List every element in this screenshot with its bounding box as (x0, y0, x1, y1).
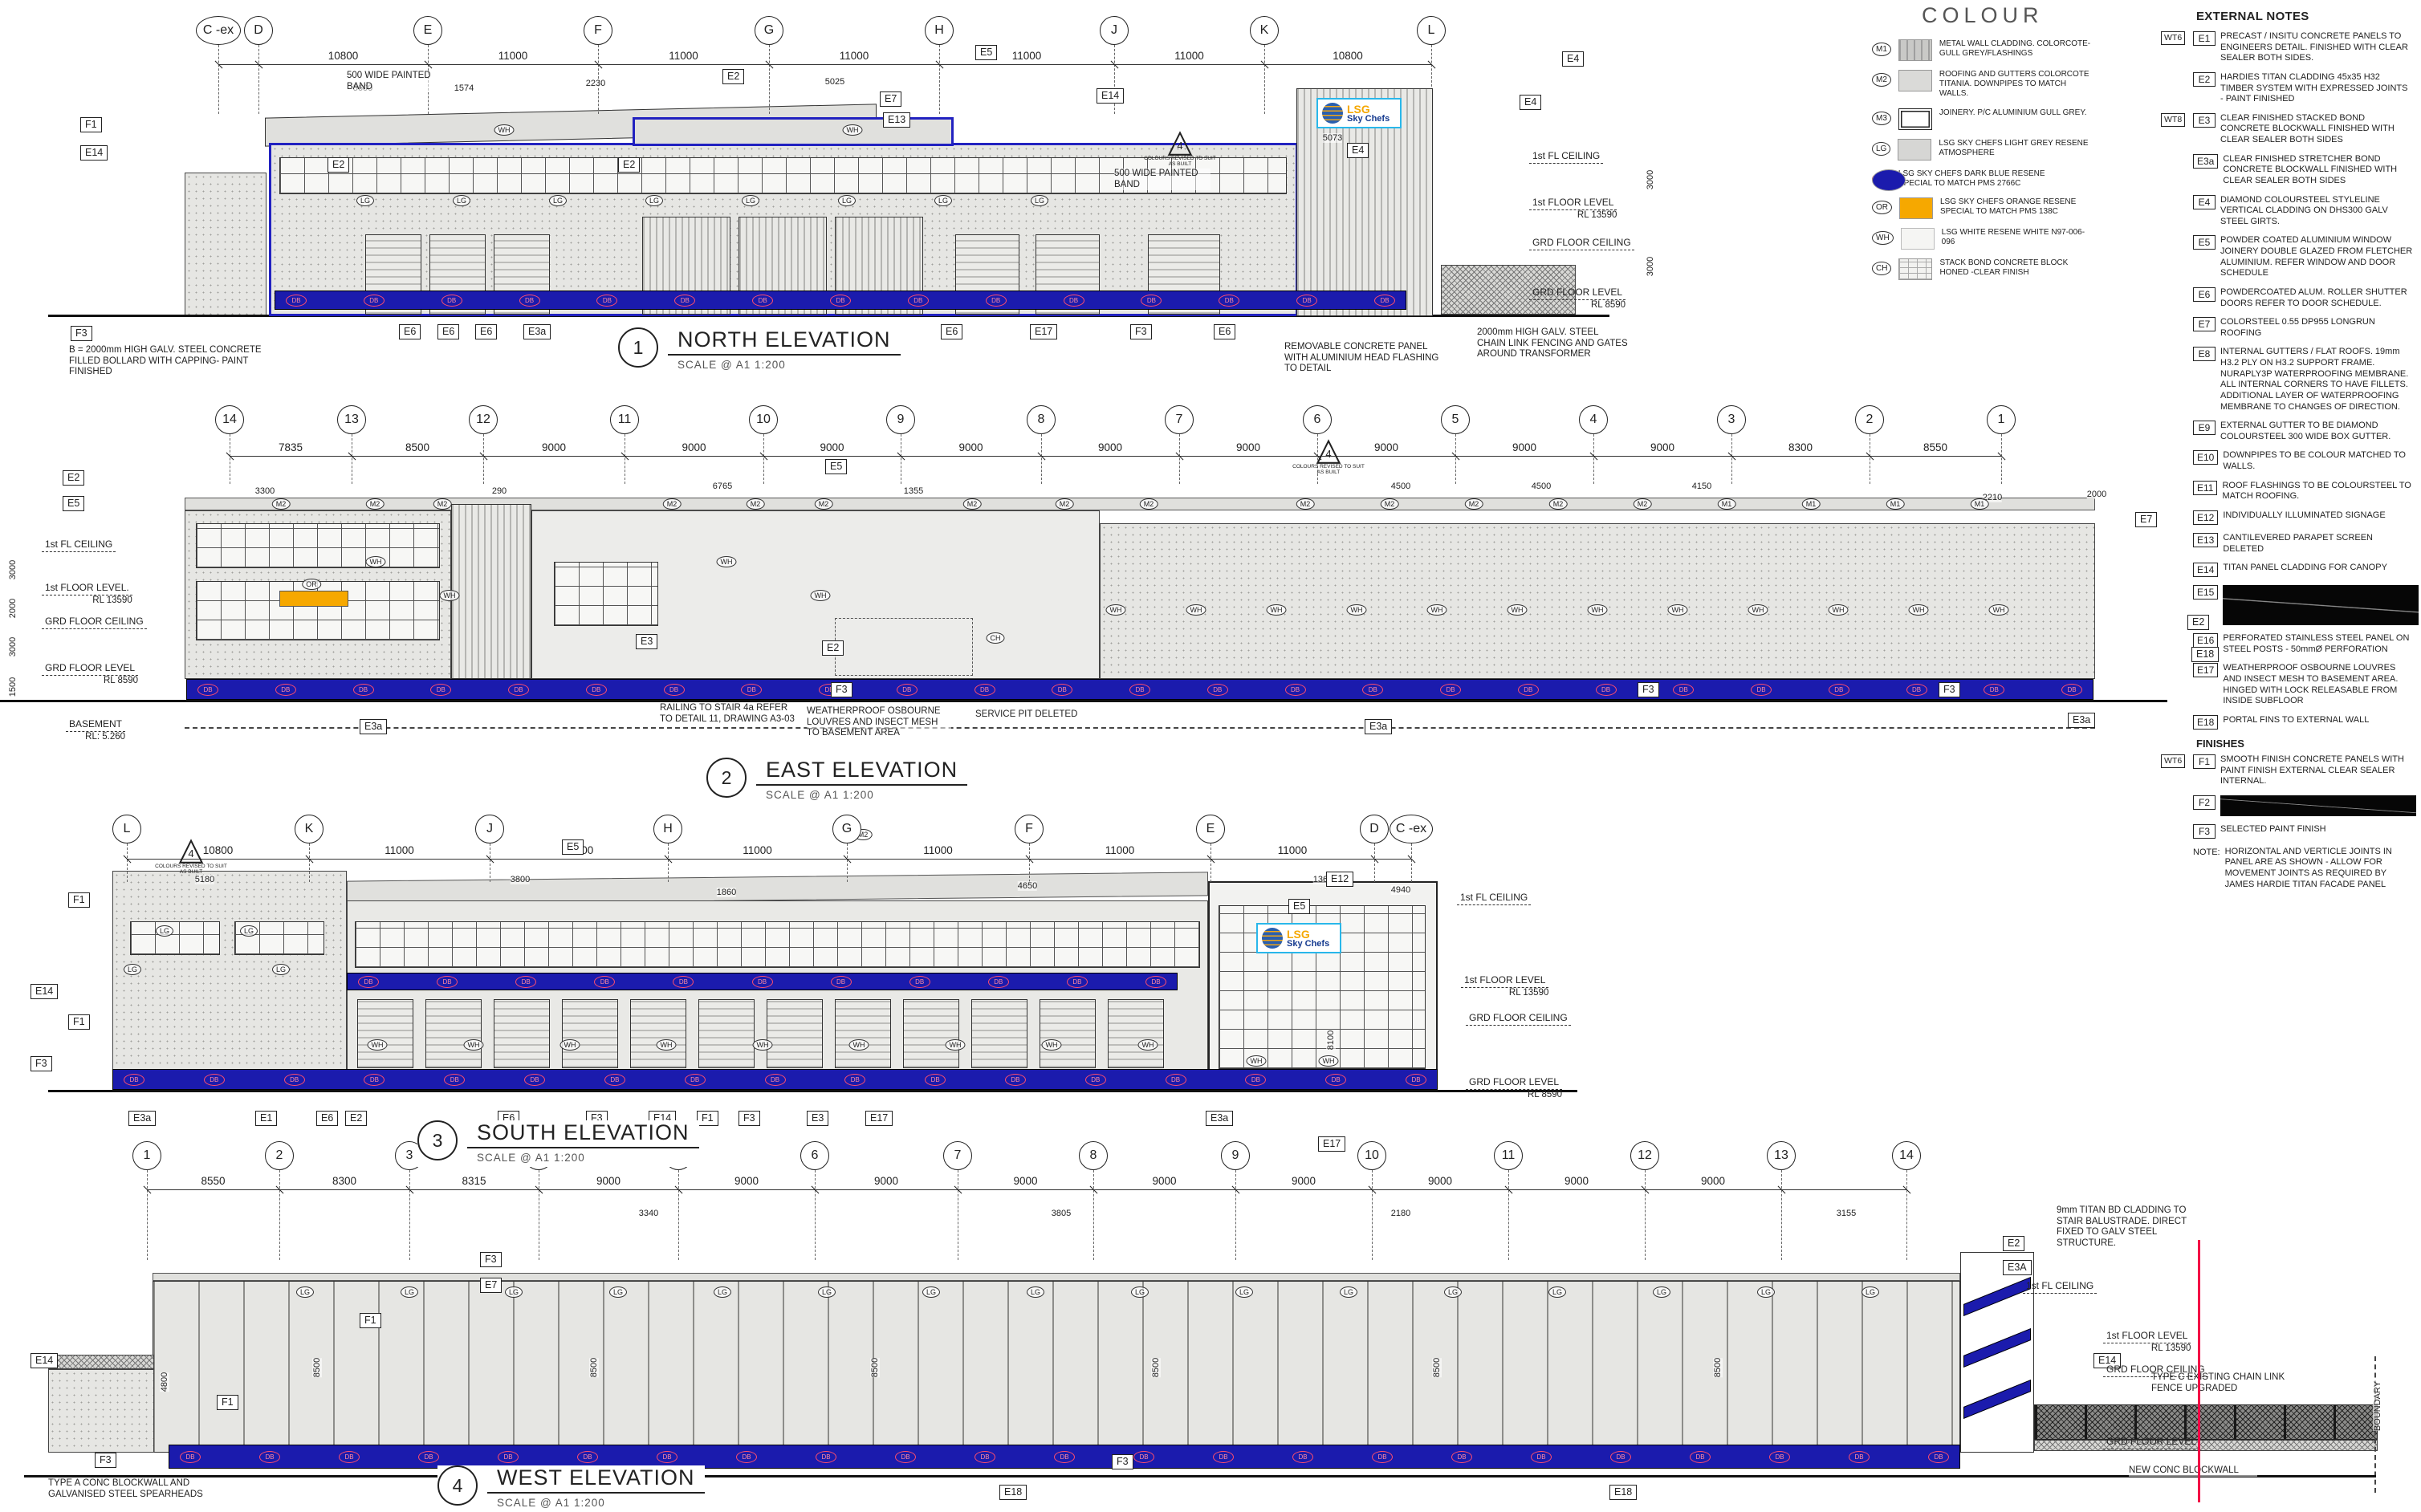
note-ref-tag: F1 (2193, 754, 2216, 769)
facade-code-label: WH (368, 1039, 388, 1051)
level-label: 1st FLOOR LEVELRL 13590 (1529, 197, 1617, 221)
dimension-label: 9000 (682, 441, 706, 453)
sub-dimension-label: 6765 (713, 482, 732, 491)
level-rl: RL 13590 (42, 595, 132, 606)
elevation-title-text: NORTH ELEVATION (668, 327, 901, 356)
facade-code-label: WH (657, 1039, 677, 1051)
grid-bubble: D (1360, 815, 1389, 843)
level-label: GRD FLOOR CEILING (42, 616, 147, 629)
note-ref-tag: E6 (2193, 287, 2216, 302)
grid-drop-line (901, 434, 901, 484)
sub-dimension-label: 1500 (8, 677, 18, 697)
facade-code-label: LG (240, 925, 258, 937)
colour-desc: LSG SKY CHEFS DARK BLUE RESENE SPECIAL T… (1898, 169, 2055, 189)
note-ref-tag: E5 (2193, 235, 2216, 250)
db-colour-marker: DB (816, 1451, 836, 1463)
colour-swatch-m2 (1898, 70, 1932, 91)
sub-dimension-label: 3805 (1052, 1209, 1071, 1218)
db-colour-marker: DB (1928, 1451, 1949, 1463)
logo-text: LSGSky Chefs (1347, 104, 1390, 124)
facade-code-label: WH (1186, 604, 1206, 616)
grid-bubble: 12 (1630, 1141, 1659, 1170)
grid-drop-line (1731, 434, 1732, 484)
logo-line2: Sky Chefs (1287, 940, 1329, 949)
grid-bubble: 13 (1767, 1141, 1796, 1170)
ref-tag: E2 (822, 640, 844, 656)
note-ref-tag: F3 (2193, 824, 2216, 839)
elevation-scale-text: SCALE @ A1 1:200 (756, 786, 967, 804)
dimension-label: 9000 (1374, 441, 1398, 453)
colour-legend-item: WHLSG WHITE RESENE WHITE N97-006-096 (1872, 228, 2118, 250)
note-prefix-slot: WT6 (2161, 31, 2188, 45)
level-label: GRD FLOOR LEVELRL 8590 (1529, 287, 1626, 311)
db-colour-marker: DB (364, 1074, 385, 1086)
grid-drop-line (1781, 1170, 1782, 1260)
grid-drop-line (147, 1170, 148, 1260)
facade-code-label: LG (296, 1286, 314, 1298)
ref-tag: E7 (2135, 512, 2157, 527)
grid-bubble: 10 (1357, 1141, 1386, 1170)
db-colour-marker: DB (1129, 684, 1150, 696)
ref-tag: E14 (80, 145, 108, 161)
grid-drop-line (127, 843, 128, 882)
note-ref-tag: E9 (2193, 421, 2216, 435)
note-ref-tag: E3 (2193, 113, 2216, 128)
sub-dimension-label: 4150 (1692, 482, 1711, 491)
grid-drop-line (1041, 434, 1042, 484)
elevation-number: 2 (706, 758, 747, 798)
elevation-title: 1NORTH ELEVATIONSCALE @ A1 1:200 (618, 327, 901, 374)
note-ref-tag: E2 (2193, 72, 2216, 87)
annotation: NEW CONC BLOCKWALL (2129, 1465, 2257, 1477)
note-item: E8INTERNAL GUTTERS / FLAT ROOFS. 19mm H3… (2161, 347, 2421, 413)
grid-bubble: 9 (1221, 1141, 1250, 1170)
ref-tag: E6 (399, 324, 421, 339)
db-colour-marker: DB (1769, 1451, 1790, 1463)
db-colour-marker: DB (664, 684, 685, 696)
note-ref-tag: E17 (2193, 663, 2218, 677)
dimension-label: 9000 (1512, 441, 1536, 453)
note-text: PERFORATED STAINLESS STEEL PANEL ON STEE… (2223, 633, 2415, 655)
facade-code-label: WH (1138, 1039, 1158, 1051)
level-rl: RL 13590 (2103, 1343, 2191, 1354)
colour-desc: LSG WHITE RESENE WHITE N97-006-096 (1942, 228, 2098, 247)
db-colour-marker: DB (1362, 684, 1383, 696)
sub-dimension-label: 3155 (1837, 1209, 1856, 1218)
sub-dimension-label: 3300 (255, 486, 275, 496)
facade-code-label: LG (838, 195, 856, 206)
redacted-block (2223, 585, 2419, 625)
db-colour-marker: DB (364, 295, 385, 307)
note-item: E12INDIVIDUALLY ILLUMINATED SIGNAGE (2161, 510, 2421, 525)
ref-tag: E3a (360, 719, 387, 734)
grid-drop-line (668, 843, 669, 882)
colour-code-bubble: WH (1872, 231, 1894, 245)
annotation: SERVICE PIT DELETED (975, 709, 1080, 721)
ref-tag: E6 (1214, 324, 1235, 339)
elevation-title-text-group: WEST ELEVATIONSCALE @ A1 1:200 (487, 1465, 705, 1512)
note-item: WT6F1SMOOTH FINISH CONCRETE PANELS WITH … (2161, 754, 2421, 787)
east-basement-line (185, 727, 2095, 729)
dimension-label: 9000 (1428, 1175, 1452, 1187)
db-colour-marker: DB (275, 684, 296, 696)
facade-code-label: LG (1027, 1286, 1044, 1298)
db-colour-marker: DB (831, 976, 852, 988)
note-item: E15 (2161, 585, 2421, 625)
annotation: 500 WIDE PAINTED BAND (1114, 169, 1210, 190)
db-colour-marker: DB (895, 1451, 916, 1463)
grid-drop-line (815, 1170, 816, 1260)
colour-legend-item: M1METAL WALL CLADDING. COLORCOTE-GULL GR… (1872, 39, 2118, 61)
grid-drop-line (1645, 1170, 1646, 1260)
note-item: E13CANTILEVERED PARAPET SCREEN DELETED (2161, 533, 2421, 555)
db-colour-marker: DB (594, 976, 615, 988)
note-item: WT6E1PRECAST / INSITU CONCRETE PANELS TO… (2161, 31, 2421, 64)
ref-tag: E14 (31, 1353, 58, 1368)
sub-dimension-label: 3000 (8, 637, 18, 656)
facade-code-label: LG (1235, 1286, 1253, 1298)
note-ref-tag: E10 (2193, 450, 2218, 465)
db-colour-marker: DB (1245, 1074, 1266, 1086)
revision-triangle: △4COLOURS REVISED TO SUIT AS BUILT (1290, 435, 1367, 475)
note-prefix-tag: WT6 (2161, 31, 2185, 45)
sub-dimension-label: 8500 (312, 1358, 322, 1377)
note-item: E2HARDIES TITAN CLADDING 45x35 H32 TIMBE… (2161, 72, 2421, 105)
ref-tag: F3 (31, 1056, 52, 1071)
west-revision-line (2198, 1240, 2200, 1502)
ref-tag: E4 (1520, 95, 1541, 110)
db-colour-marker: DB (674, 295, 695, 307)
ref-tag: F1 (697, 1111, 718, 1126)
facade-code-label: M1 (1718, 498, 1736, 510)
facade-code-label: LG (1757, 1286, 1775, 1298)
db-colour-marker: DB (353, 684, 374, 696)
db-colour-marker: DB (897, 684, 918, 696)
grid-drop-line (678, 1170, 679, 1260)
west-roof-fascia (153, 1273, 1960, 1281)
note-ref-tag: E1 (2193, 31, 2216, 46)
sub-dimension-label: 3000 (1646, 257, 1655, 276)
logo-line1: LSG (1347, 104, 1390, 115)
elevation-number: 4 (437, 1465, 478, 1506)
grid-drop-line (352, 434, 352, 484)
south-roller-door (903, 999, 959, 1068)
grid-bubble: 14 (1892, 1141, 1921, 1170)
dimension-label: 9000 (958, 441, 983, 453)
level-name: 1st FLOOR LEVEL. (42, 583, 132, 595)
sub-dimension-label: 4500 (1532, 482, 1551, 491)
db-colour-marker: DB (1207, 684, 1228, 696)
colour-desc: LSG SKY CHEFS ORANGE RESENE SPECIAL TO M… (1940, 197, 2097, 217)
db-colour-marker: DB (1610, 1451, 1631, 1463)
west-left-annex (48, 1369, 154, 1453)
db-colour-marker: DB (685, 1074, 706, 1086)
level-name: BASEMENT (66, 719, 125, 732)
ref-tag: F3 (1112, 1454, 1133, 1469)
ref-tag: E2 (345, 1111, 367, 1126)
grid-bubble: E (1196, 815, 1225, 843)
facade-code-label: M1 (1802, 498, 1821, 510)
colour-legend-item: DBLSG SKY CHEFS DARK BLUE RESENE SPECIAL… (1872, 169, 2118, 189)
grid-bubble: H (925, 16, 954, 45)
elevation-scale-text: SCALE @ A1 1:200 (668, 356, 901, 374)
facade-code-label: WH (1989, 604, 2009, 616)
grid-bubble: 6 (800, 1141, 829, 1170)
note-prefix-tag: WT8 (2161, 113, 2185, 127)
facade-code-label: WH (1909, 604, 1929, 616)
db-colour-marker: DB (1406, 1074, 1426, 1086)
db-colour-marker: DB (844, 1074, 865, 1086)
db-colour-marker: DB (986, 295, 1007, 307)
sub-dimension-label: 3340 (639, 1209, 658, 1218)
grid-drop-line (939, 45, 940, 114)
sub-dimension-label: 8100 (1326, 1030, 1336, 1050)
level-label: GRD FLOOR LEVEL (2103, 1437, 2199, 1449)
level-label: 1st FL CEILING (42, 539, 116, 552)
db-colour-marker: DB (909, 976, 930, 988)
level-name: GRD FLOOR LEVEL (2103, 1437, 2199, 1449)
facade-code-label: WH (1347, 604, 1367, 616)
level-rl: RL 13590 (1461, 988, 1548, 998)
note-text: CLEAR FINISHED STACKED BOND CONCRETE BLO… (2220, 113, 2413, 146)
facade-code-label: LG (356, 195, 374, 206)
db-colour-marker: DB (259, 1451, 280, 1463)
note-item: WT8E3CLEAR FINISHED STACKED BOND CONCRET… (2161, 113, 2421, 146)
grid-drop-line (763, 434, 764, 484)
ref-tag: E14 (31, 984, 58, 999)
db-colour-marker: DB (988, 976, 1009, 988)
facade-code-label: LG (1131, 1286, 1149, 1298)
level-rl: RL 8590 (1466, 1090, 1562, 1100)
annotation: B = 2000mm HIGH GALV. STEEL CONCRETE FIL… (69, 345, 262, 378)
facade-code-label: WH (1829, 604, 1849, 616)
grid-bubble: J (1100, 16, 1129, 45)
dimension-line (127, 859, 1411, 860)
sub-dimension-label: BOUNDARY (2373, 1381, 2382, 1431)
south-roller-door (630, 999, 686, 1068)
grid-bubble: D (244, 16, 273, 45)
db-colour-marker: DB (1849, 1451, 1870, 1463)
db-colour-marker: DB (752, 976, 773, 988)
db-colour-marker: DB (925, 1074, 946, 1086)
ref-tag: E7 (880, 91, 901, 107)
level-name: 1st FLOOR LEVEL (1529, 197, 1617, 210)
dimension-label: 9000 (1013, 1175, 1037, 1187)
grid-drop-line (958, 1170, 958, 1260)
facade-code-label: LG (1444, 1286, 1462, 1298)
dimension-label: 9000 (874, 1175, 898, 1187)
ref-tag: F3 (480, 1252, 502, 1267)
db-colour-marker: DB (1141, 295, 1162, 307)
annotation: REMOVABLE CONCRETE PANEL WITH ALUMINIUM … (1284, 342, 1445, 375)
grid-bubble: F (1015, 815, 1044, 843)
facade-code-label: M2 (366, 498, 385, 510)
grid-bubble: 7 (1165, 405, 1194, 434)
level-name: GRD FLOOR CEILING (2103, 1364, 2208, 1377)
facade-code-label: LG (1031, 195, 1048, 206)
note-item: NOTE:HORIZONTAL AND VERTICLE JOINTS IN P… (2161, 847, 2421, 891)
ref-tag: E7 (480, 1278, 502, 1293)
colour-swatch-or (1899, 197, 1933, 219)
db-colour-marker: DB (508, 684, 529, 696)
dimension-label: 9000 (542, 441, 566, 453)
colour-code-bubble: M2 (1872, 73, 1891, 87)
level-label: GRD FLOOR CEILING (1529, 238, 1634, 250)
grid-bubble: 12 (469, 405, 498, 434)
grid-drop-line (847, 843, 848, 882)
ref-tag: F3 (71, 326, 92, 341)
note-item: E16PERFORATED STAINLESS STEEL PANEL ON S… (2161, 633, 2421, 655)
grid-drop-line (625, 434, 625, 484)
db-colour-marker: DB (1052, 684, 1072, 696)
db-colour-marker: DB (519, 295, 540, 307)
colour-swatch-db (1872, 169, 1906, 191)
db-colour-marker: DB (1531, 1451, 1552, 1463)
level-label: GRD FLOOR LEVELRL 8590 (42, 663, 138, 686)
facade-code-label: LG (549, 195, 567, 206)
logo-globe-icon (1262, 928, 1283, 949)
note-text: DIAMOND COLOURSTEEL STYLELINE VERTICAL C… (2220, 195, 2413, 228)
facade-code-label: LG (505, 1286, 523, 1298)
note-text: HORIZONTAL AND VERTICLE JOINTS IN PANEL … (2225, 847, 2418, 891)
grid-bubble: E (413, 16, 442, 45)
facade-code-label: M2 (963, 498, 982, 510)
east-orange-band (279, 591, 348, 607)
db-colour-marker: DB (1166, 1074, 1186, 1086)
facade-code-label: M2 (815, 498, 833, 510)
db-colour-marker: DB (1451, 1451, 1472, 1463)
elevation-scale-text: SCALE @ A1 1:200 (467, 1148, 699, 1167)
grid-drop-line (230, 434, 230, 484)
note-text: SELECTED PAINT FINISH (2220, 824, 2413, 835)
revision-triangle: △4COLOURS REVISED TO SUIT AS BUILT (1141, 127, 1219, 167)
external-notes-title: EXTERNAL NOTES (2196, 10, 2421, 23)
sub-dimension-label: 8500 (589, 1358, 599, 1377)
sub-dimension-label: 5025 (825, 77, 844, 87)
level-label: 1st FLOOR LEVEL.RL 13590 (42, 583, 132, 606)
east-mid-window (554, 562, 658, 626)
ref-tag: F1 (68, 892, 90, 908)
triangle-number: 4 (1177, 140, 1182, 152)
note-ref-tag: E12 (2193, 510, 2218, 525)
facade-code-label: M2 (1296, 498, 1315, 510)
ref-tag: E4 (1562, 51, 1584, 67)
south-roller-door (971, 999, 1027, 1068)
elevation-title-text: EAST ELEVATION (756, 758, 967, 786)
dimension-label: 8300 (1788, 441, 1813, 453)
dimension-label: 8315 (462, 1175, 486, 1187)
note-item: F3SELECTED PAINT FINISH (2161, 824, 2421, 839)
note-ref-tag: F2 (2193, 795, 2216, 810)
colour-desc: ROOFING AND GUTTERS COLORCOTE TITANIA. D… (1939, 70, 2096, 100)
grid-bubble: K (295, 815, 323, 843)
dimension-label: 9000 (1701, 1175, 1725, 1187)
level-label: 1st FL CEILING (1457, 892, 1531, 905)
sub-dimension-label: 8500 (1713, 1358, 1723, 1377)
ref-tag: F3 (831, 682, 852, 697)
logo-globe-icon (1322, 103, 1343, 124)
facade-code-label: WH (946, 1039, 966, 1051)
west-annex-parapet (48, 1355, 154, 1369)
dimension-label: 8300 (332, 1175, 356, 1187)
grid-bubble: 3 (1717, 405, 1746, 434)
west-boundary-fence (2034, 1404, 2378, 1440)
note-text: HARDIES TITAN CLADDING 45x35 H32 TIMBER … (2220, 72, 2413, 105)
ref-tag: F1 (217, 1395, 238, 1410)
db-colour-marker: DB (1219, 295, 1239, 307)
colour-legend-item: M2ROOFING AND GUTTERS COLORCOTE TITANIA.… (1872, 70, 2118, 100)
grid-bubble: 11 (1494, 1141, 1523, 1170)
ref-tag: F3 (95, 1453, 116, 1468)
db-colour-marker: DB (908, 295, 929, 307)
note-ref-tag: E3a (2193, 154, 2218, 169)
db-colour-marker: DB (1673, 684, 1694, 696)
facade-code-label: LG (272, 964, 290, 975)
db-colour-marker: DB (204, 1074, 225, 1086)
finishes-heading: FINISHES (2196, 738, 2421, 750)
east-portal-tower (451, 504, 531, 679)
grid-drop-line (258, 45, 259, 114)
facade-code-label: WH (1106, 604, 1126, 616)
note-prefix-slot: WT6 (2161, 754, 2188, 768)
colour-code-bubble: M1 (1872, 43, 1891, 56)
ref-tag: E5 (1288, 899, 1310, 914)
sub-dimension-label: 1355 (904, 486, 923, 496)
facade-code-label: M2 (1465, 498, 1483, 510)
colour-swatch-m3 (1898, 108, 1932, 130)
dimension-label: 9000 (596, 1175, 621, 1187)
note-item: E14TITAN PANEL CLADDING FOR CANOPY (2161, 563, 2421, 577)
note-ref-tag: E14 (2193, 563, 2218, 577)
south-roller-door (494, 999, 550, 1068)
dimension-label: 11000 (1012, 50, 1042, 62)
note-ref-tag: E15 (2193, 585, 2218, 600)
facade-code-label: M2 (1634, 498, 1652, 510)
sub-dimension-label: 8500 (870, 1358, 880, 1377)
facade-code-label: LG (1653, 1286, 1670, 1298)
note-label: NOTE: (2193, 847, 2220, 858)
ref-tag: E3A (2003, 1260, 2032, 1275)
db-colour-marker: DB (1145, 976, 1166, 988)
grid-bubble: 11 (610, 405, 639, 434)
facade-code-label: LG (1862, 1286, 1879, 1298)
colour-code-bubble: M3 (1872, 112, 1891, 125)
south-roller-door (698, 999, 755, 1068)
elevation-scale-text: SCALE @ A1 1:200 (487, 1494, 705, 1512)
facade-code-label: LG (609, 1286, 627, 1298)
colour-swatch-wh (1901, 228, 1935, 250)
db-colour-marker: DB (1213, 1451, 1234, 1463)
lsg-sky-chefs-logo: LSGSky Chefs (1316, 98, 1402, 128)
south-roller-door (357, 999, 413, 1068)
level-name: 1st FL CEILING (1529, 151, 1603, 164)
ref-tag: E3a (1365, 719, 1392, 734)
db-colour-marker: DB (358, 976, 379, 988)
ref-tag: E5 (63, 496, 84, 511)
level-name: GRD FLOOR CEILING (42, 616, 147, 629)
annotation: 500 WIDE PAINTED BAND (347, 71, 443, 92)
dimension-label: 11000 (1278, 844, 1308, 856)
ref-tag: E2 (2003, 1236, 2024, 1251)
sub-dimension-label: 2000 (8, 599, 18, 618)
note-text: CANTILEVERED PARAPET SCREEN DELETED (2223, 533, 2415, 555)
south-ground-line (48, 1090, 1577, 1092)
redacted-block (2220, 795, 2416, 816)
note-item: E6POWDERCOATED ALUM. ROLLER SHUTTER DOOR… (2161, 287, 2421, 309)
ref-tag: E2 (722, 69, 744, 84)
ref-tag: E4 (1347, 143, 1369, 158)
db-colour-marker: DB (975, 684, 995, 696)
